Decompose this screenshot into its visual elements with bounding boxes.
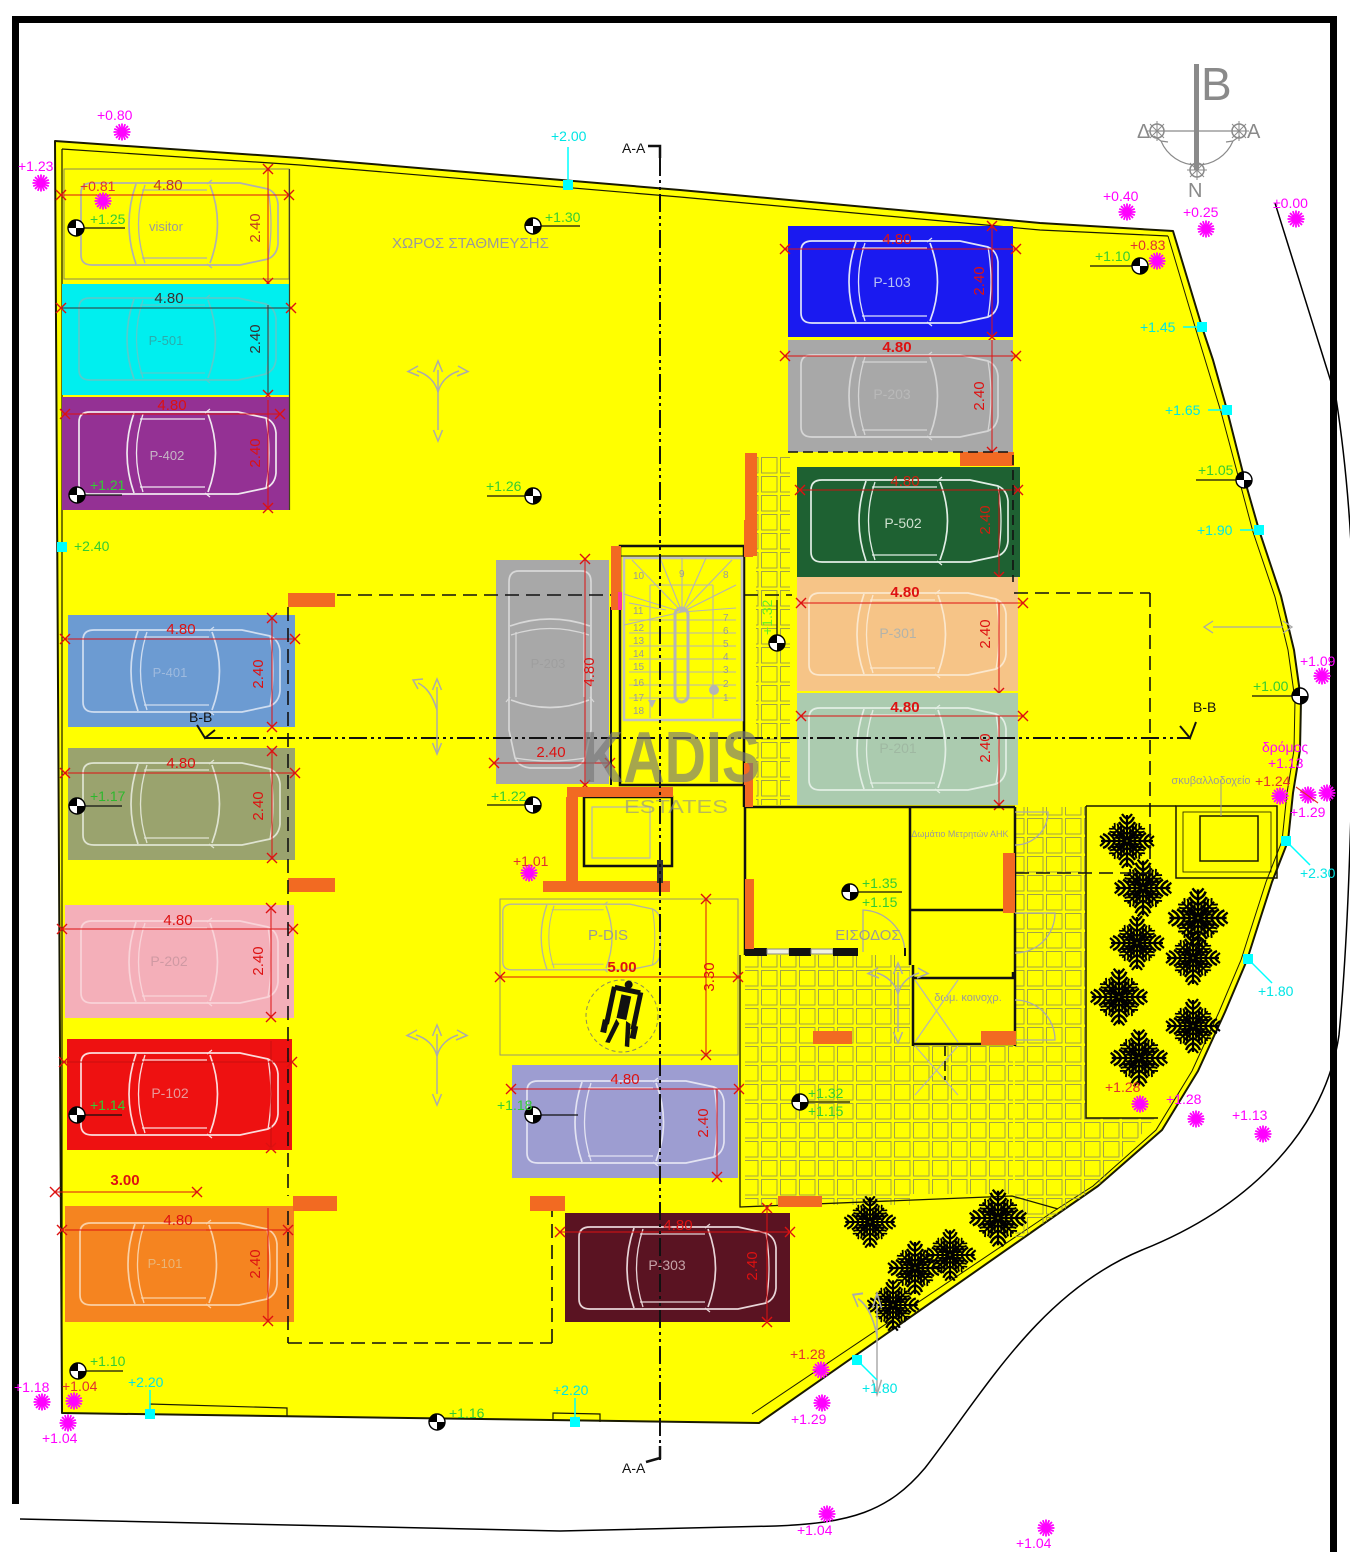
svg-text:7: 7 [723, 613, 729, 624]
svg-text:B-B: B-B [189, 709, 212, 725]
svg-text:P-201: P-201 [879, 740, 917, 756]
svg-text:4.80: 4.80 [166, 755, 195, 772]
svg-text:2.40: 2.40 [247, 1249, 264, 1278]
svg-text:5: 5 [723, 639, 729, 650]
svg-text:+1.29: +1.29 [791, 1411, 827, 1427]
svg-text:+2.30: +2.30 [1300, 865, 1336, 881]
svg-text:15: 15 [633, 662, 645, 673]
svg-text:+1.04: +1.04 [797, 1522, 833, 1538]
svg-text:A-A: A-A [622, 140, 646, 156]
svg-text:+1.45: +1.45 [1140, 319, 1176, 335]
svg-text:A-A: A-A [622, 1460, 646, 1476]
svg-text:+0.81: +0.81 [80, 178, 116, 194]
svg-text:4.80: 4.80 [581, 657, 598, 686]
svg-text:2.40: 2.40 [695, 1108, 712, 1137]
svg-text:P-301: P-301 [879, 625, 917, 641]
svg-text:+1.16: +1.16 [449, 1405, 485, 1421]
svg-text:+1.24: +1.24 [1255, 773, 1291, 789]
svg-text:4.80: 4.80 [890, 473, 919, 490]
svg-text:+1.10: +1.10 [1095, 248, 1131, 264]
svg-text:P-202: P-202 [150, 953, 188, 969]
svg-text:+1.21: +1.21 [90, 477, 126, 493]
svg-text:+1.28: +1.28 [790, 1346, 826, 1362]
svg-text:4.80: 4.80 [154, 290, 183, 307]
svg-text:3.00: 3.00 [110, 1172, 139, 1189]
svg-text:2.40: 2.40 [536, 744, 565, 761]
svg-text:4.80: 4.80 [610, 1071, 639, 1088]
svg-text:+1.00: +1.00 [1253, 678, 1289, 694]
svg-text:±0.00: ±0.00 [1273, 195, 1308, 211]
svg-text:+1.18: +1.18 [497, 1097, 533, 1113]
svg-text:+1.80: +1.80 [862, 1380, 898, 1396]
svg-text:+1.35: +1.35 [862, 875, 898, 891]
svg-text:12: 12 [633, 623, 645, 634]
svg-text:2.40: 2.40 [971, 381, 988, 410]
svg-text:2.40: 2.40 [971, 266, 988, 295]
svg-text:2: 2 [723, 679, 729, 690]
svg-text:2.40: 2.40 [250, 946, 267, 975]
svg-text:+1.15: +1.15 [862, 894, 898, 910]
svg-text:+1.04: +1.04 [42, 1430, 78, 1446]
svg-text:2.40: 2.40 [247, 213, 264, 242]
svg-text:18: 18 [633, 706, 645, 717]
svg-text:ΕΙΣΟΔΟΣ: ΕΙΣΟΔΟΣ [835, 927, 900, 944]
svg-text:A: A [1247, 121, 1261, 143]
svg-text:2.40: 2.40 [744, 1251, 761, 1280]
svg-text:Δ: Δ [1137, 121, 1150, 143]
svg-text:+2.40: +2.40 [74, 538, 110, 554]
svg-text:8: 8 [723, 570, 729, 581]
svg-text:+1.10: +1.10 [90, 1353, 126, 1369]
svg-text:+2.20: +2.20 [128, 1374, 164, 1390]
svg-text:+1.18: +1.18 [14, 1379, 50, 1395]
svg-text:+1.32: +1.32 [759, 599, 775, 635]
svg-text:P-102: P-102 [151, 1085, 189, 1101]
svg-text:+0.40: +0.40 [1103, 188, 1139, 204]
svg-text:+1.32: +1.32 [808, 1085, 844, 1101]
svg-text:4.80: 4.80 [166, 621, 195, 638]
svg-text:5.00: 5.00 [607, 959, 636, 976]
svg-text:+1.30: +1.30 [545, 209, 581, 225]
svg-text:+1.05: +1.05 [1198, 462, 1234, 478]
svg-text:1: 1 [723, 693, 729, 704]
svg-text:B-B: B-B [1193, 699, 1216, 715]
svg-text:2.40: 2.40 [247, 324, 264, 353]
svg-text:2.40: 2.40 [250, 791, 267, 820]
svg-text:+1.23: +1.23 [18, 158, 54, 174]
svg-text:P-DIS: P-DIS [588, 927, 628, 944]
svg-text:KADIS: KADIS [582, 718, 760, 798]
svg-text:14: 14 [633, 649, 645, 660]
svg-text:+1.28: +1.28 [1166, 1091, 1202, 1107]
svg-text:P-502: P-502 [884, 515, 922, 531]
svg-text:10: 10 [633, 571, 645, 582]
svg-text:4.80: 4.80 [882, 231, 911, 248]
svg-text:17: 17 [633, 693, 645, 704]
svg-text:+1.15: +1.15 [808, 1103, 844, 1119]
svg-text:δρόμος: δρόμος [1262, 739, 1308, 755]
svg-text:+1.90: +1.90 [1197, 522, 1233, 538]
svg-text:+2.20: +2.20 [553, 1382, 589, 1398]
svg-text:+1.25: +1.25 [90, 211, 126, 227]
svg-text:P-402: P-402 [150, 448, 185, 463]
svg-text:ΧΩΡΟΣ ΣΤΑΘΜΕΥΣΗΣ: ΧΩΡΟΣ ΣΤΑΘΜΕΥΣΗΣ [392, 235, 549, 252]
svg-text:+0.83: +0.83 [1130, 237, 1166, 253]
svg-text:σκυβαλλοδοχείο: σκυβαλλοδοχείο [1171, 775, 1250, 787]
svg-text:+1.04: +1.04 [62, 1378, 98, 1394]
svg-text:+1.22: +1.22 [491, 788, 527, 804]
svg-text:+1.17: +1.17 [90, 788, 126, 804]
svg-text:N: N [1188, 180, 1202, 202]
svg-text:4.80: 4.80 [890, 584, 919, 601]
svg-text:4.80: 4.80 [157, 397, 186, 414]
svg-text:3: 3 [723, 665, 729, 676]
svg-text:2.40: 2.40 [977, 505, 994, 534]
svg-text:11: 11 [633, 606, 644, 617]
svg-text:P-103: P-103 [873, 274, 911, 290]
svg-text:4.80: 4.80 [890, 699, 919, 716]
svg-text:P-203: P-203 [531, 656, 566, 671]
svg-text:+0.80: +0.80 [97, 107, 133, 123]
svg-text:+2.00: +2.00 [551, 128, 587, 144]
svg-text:6: 6 [723, 626, 729, 637]
svg-text:16: 16 [633, 678, 645, 689]
svg-text:+1.04: +1.04 [1016, 1535, 1052, 1551]
svg-text:+1.13: +1.13 [1232, 1107, 1268, 1123]
svg-text:+1.26: +1.26 [486, 478, 522, 494]
svg-text:ESTATES: ESTATES [624, 797, 728, 817]
svg-text:13: 13 [633, 636, 645, 647]
svg-text:+1.14: +1.14 [90, 1097, 126, 1113]
svg-text:4.80: 4.80 [163, 1212, 192, 1229]
svg-text:3.30: 3.30 [701, 962, 718, 991]
svg-text:4.80: 4.80 [163, 912, 192, 929]
svg-text:visitor: visitor [149, 219, 184, 234]
svg-text:+1.65: +1.65 [1165, 402, 1201, 418]
svg-text:Δωμάτιο Μετρητών ΑΗΚ: Δωμάτιο Μετρητών ΑΗΚ [911, 829, 1008, 839]
svg-text:P-101: P-101 [148, 1256, 183, 1271]
svg-text:9: 9 [679, 569, 685, 580]
svg-text:2.40: 2.40 [247, 438, 264, 467]
svg-text:4.80: 4.80 [882, 339, 911, 356]
svg-text:4.80: 4.80 [663, 1217, 692, 1234]
svg-text:2.40: 2.40 [977, 619, 994, 648]
svg-text:4.80: 4.80 [153, 177, 182, 194]
svg-text:+0.25: +0.25 [1183, 204, 1219, 220]
svg-text:B: B [1201, 58, 1232, 110]
svg-text:+1.28: +1.28 [1105, 1079, 1141, 1095]
svg-text:P-303: P-303 [648, 1257, 686, 1273]
svg-text:+1.09: +1.09 [1300, 653, 1336, 669]
svg-text:4: 4 [723, 652, 729, 663]
svg-text:+1.29: +1.29 [1290, 804, 1326, 820]
svg-text:+1.01: +1.01 [513, 853, 549, 869]
svg-text:+1.80: +1.80 [1258, 983, 1294, 999]
svg-text:+1.13: +1.13 [1268, 755, 1304, 771]
svg-text:δωμ. κοινοχρ.: δωμ. κοινοχρ. [934, 992, 1002, 1004]
svg-text:P-203: P-203 [873, 386, 911, 402]
svg-text:2.40: 2.40 [250, 659, 267, 688]
svg-text:P-501: P-501 [149, 333, 184, 348]
svg-text:P-401: P-401 [153, 665, 188, 680]
